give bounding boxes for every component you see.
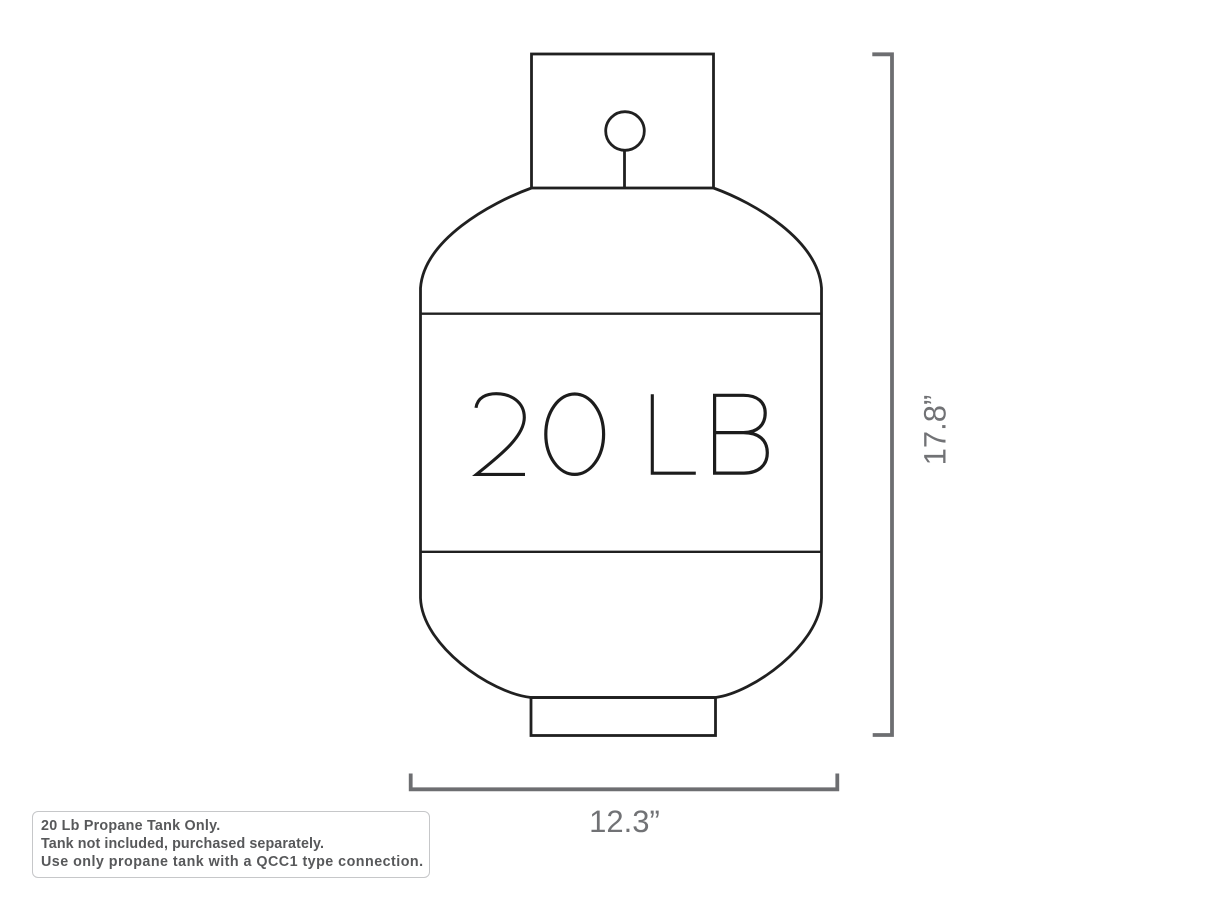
svg-text:17.8”: 17.8” <box>918 395 953 466</box>
svg-text:12.3”: 12.3” <box>589 804 660 839</box>
